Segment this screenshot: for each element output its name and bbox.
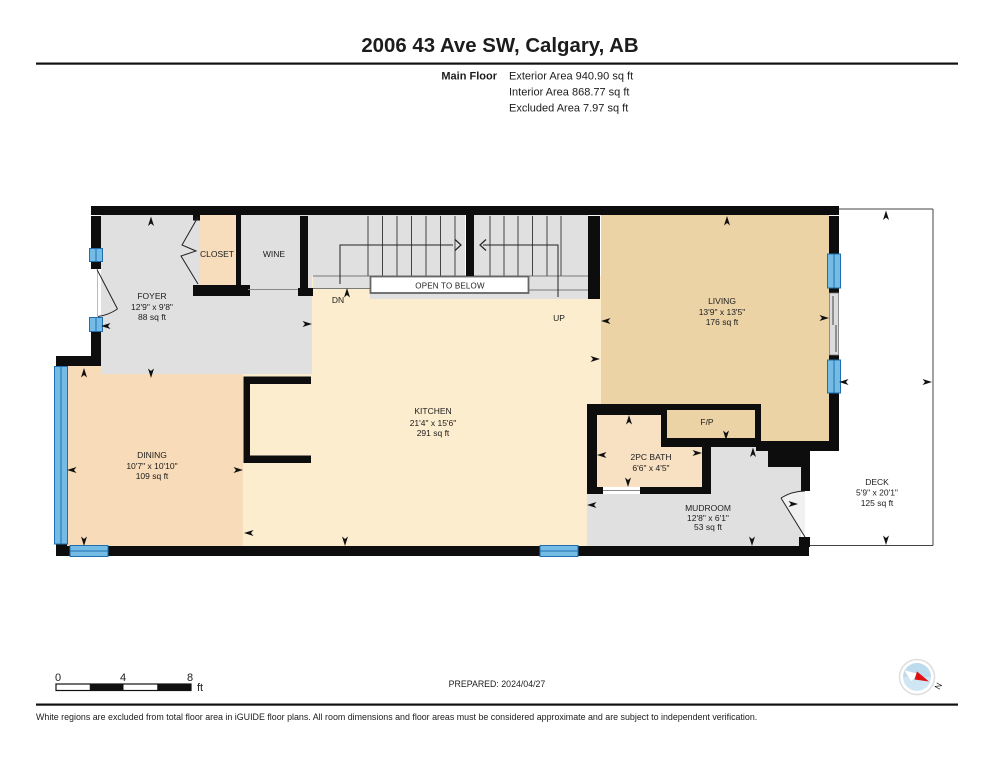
svg-text:5'9" x 20'1": 5'9" x 20'1" [856,488,898,498]
svg-text:White regions are excluded fro: White regions are excluded from total fl… [36,712,757,722]
svg-text:21'4" x 15'6": 21'4" x 15'6" [410,418,457,428]
svg-text:2PC BATH: 2PC BATH [631,452,672,462]
svg-text:88 sq ft: 88 sq ft [138,312,167,322]
svg-text:PREPARED: 2024/04/27: PREPARED: 2024/04/27 [449,679,546,689]
svg-text:DN: DN [332,295,344,305]
svg-text:13'9" x 13'5": 13'9" x 13'5" [699,307,746,317]
svg-text:Interior Area 868.77 sq ft: Interior Area 868.77 sq ft [509,87,629,99]
svg-text:4: 4 [120,672,126,684]
svg-text:UP: UP [553,313,565,323]
svg-text:LIVING: LIVING [708,296,736,306]
svg-text:0: 0 [55,672,61,684]
svg-text:Exterior Area 940.90 sq ft: Exterior Area 940.90 sq ft [509,71,633,83]
svg-text:Excluded Area 7.97 sq ft: Excluded Area 7.97 sq ft [509,103,628,115]
svg-text:KITCHEN: KITCHEN [414,406,451,416]
svg-text:109 sq ft: 109 sq ft [136,471,169,481]
svg-text:CLOSET: CLOSET [200,249,234,259]
svg-text:MUDROOM: MUDROOM [685,503,731,513]
svg-text:12'9" x 9'8": 12'9" x 9'8" [131,302,173,312]
svg-text:FOYER: FOYER [137,291,166,301]
svg-text:Main Floor: Main Floor [441,71,497,83]
svg-text:DECK: DECK [865,477,889,487]
svg-text:125 sq ft: 125 sq ft [861,498,894,508]
svg-text:2006 43 Ave SW, Calgary, AB: 2006 43 Ave SW, Calgary, AB [361,35,638,57]
svg-text:53 sq ft: 53 sq ft [694,522,723,532]
svg-text:8: 8 [187,672,193,684]
svg-text:ft: ft [197,682,203,694]
svg-text:291 sq ft: 291 sq ft [417,428,450,438]
svg-text:WINE: WINE [263,249,286,259]
svg-text:176 sq ft: 176 sq ft [706,317,739,327]
svg-text:10'7" x 10'10": 10'7" x 10'10" [126,461,177,471]
svg-text:DINING: DINING [137,450,167,460]
svg-text:F/P: F/P [700,417,714,427]
svg-text:6'6" x 4'5": 6'6" x 4'5" [632,463,669,473]
svg-text:OPEN TO BELOW: OPEN TO BELOW [415,282,485,291]
